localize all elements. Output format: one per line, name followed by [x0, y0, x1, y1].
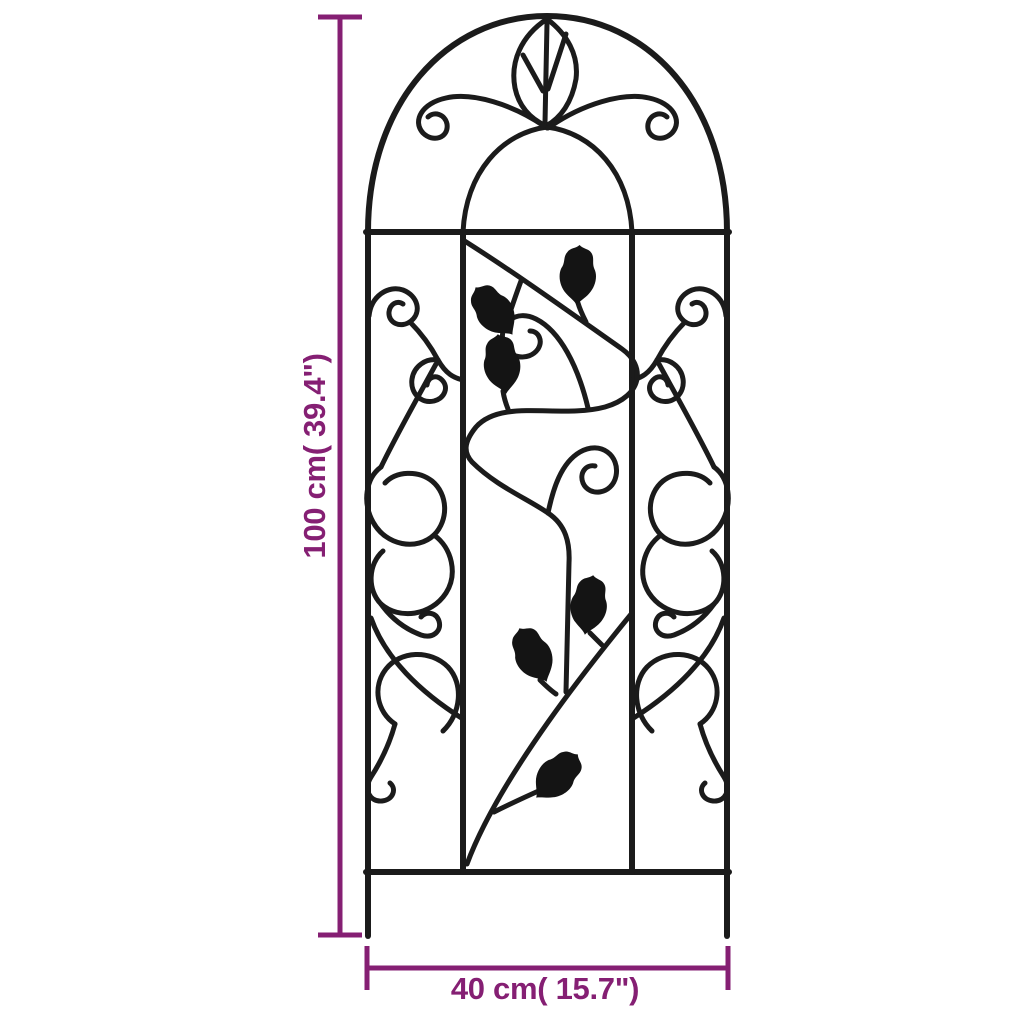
vine-leaf [480, 332, 524, 396]
left-panel-scrolls [367, 96, 547, 801]
height-dimension-label: 100 cm( 39.4") [297, 353, 333, 558]
width-dimension-label: 40 cm( 15.7") [451, 971, 639, 1007]
vine-leaf [503, 620, 563, 690]
apex-leaf-vein [545, 23, 547, 123]
vine-leaf [523, 742, 591, 810]
inner-arch [463, 127, 632, 232]
leaf-stem-5 [540, 680, 556, 694]
vine-scroll-lower [548, 448, 617, 513]
vine-leaf [558, 244, 598, 306]
leaf-stem-4 [590, 633, 602, 645]
leaf-stem-3 [503, 391, 508, 409]
right-panel-scrolls [548, 96, 728, 801]
apex-leaf-vein-right [548, 34, 566, 89]
trellis-illustration [0, 0, 1024, 1024]
product-dimension-diagram: 100 cm( 39.4") 40 cm( 15.7") [0, 0, 1024, 1024]
vine-leaves [461, 244, 611, 810]
vine-leaf [567, 573, 611, 637]
apex-leaf-vein-left [523, 55, 543, 91]
